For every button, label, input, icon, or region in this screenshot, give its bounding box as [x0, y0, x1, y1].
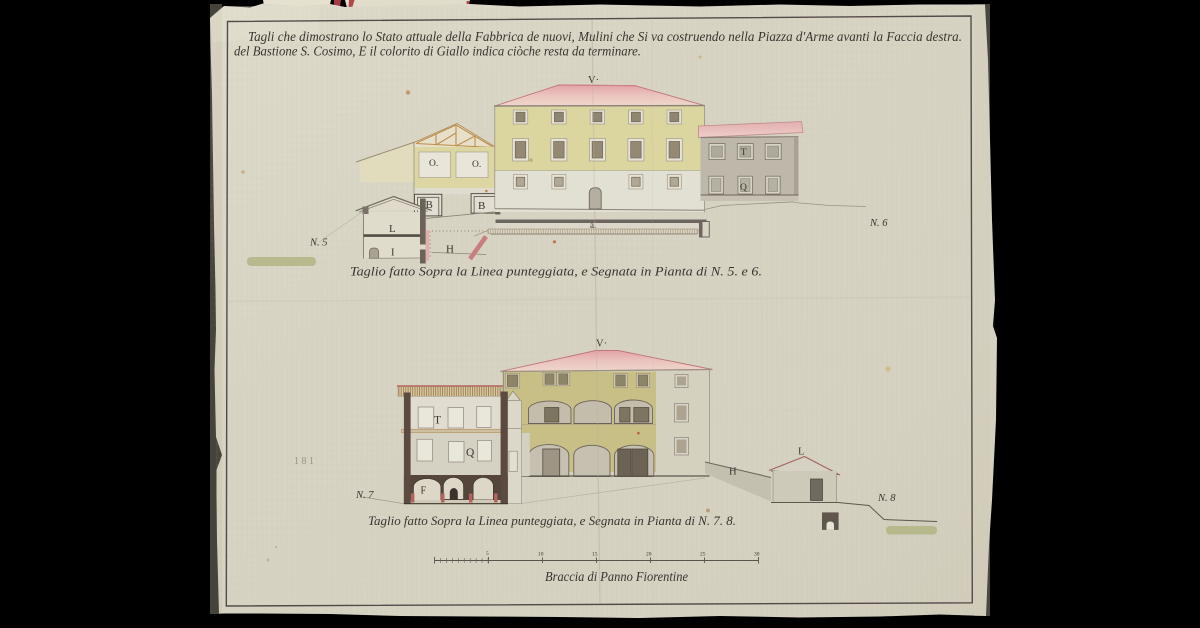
svg-text:Q: Q — [466, 447, 475, 459]
svg-text:del Bastione S. Cosimo, E il c: del Bastione S. Cosimo, E il colorito di… — [234, 44, 641, 59]
svg-text:N. 8: N. 8 — [877, 493, 896, 504]
svg-text:10: 10 — [538, 552, 544, 558]
svg-text:L: L — [389, 223, 396, 235]
svg-text:30: 30 — [754, 552, 760, 558]
svg-text:Taglio fatto Sopra la Linea pu: Taglio fatto Sopra la Linea punteggiata,… — [350, 264, 762, 279]
svg-text:T: T — [434, 415, 441, 427]
svg-text:B: B — [478, 200, 485, 212]
svg-text:H: H — [446, 244, 454, 256]
svg-text:H: H — [729, 467, 737, 478]
svg-text:Q: Q — [740, 183, 747, 193]
svg-text:Braccia di Panno Fiorentine: Braccia di Panno Fiorentine — [545, 569, 688, 584]
svg-text:N. 7: N. 7 — [355, 490, 374, 501]
svg-text:15: 15 — [592, 552, 598, 558]
svg-text:20: 20 — [646, 552, 652, 558]
svg-text:O.: O. — [472, 160, 481, 170]
svg-text:Taglio fatto Sopra la Linea pu: Taglio fatto Sopra la Linea punteggiata,… — [368, 513, 736, 528]
svg-text:O.: O. — [429, 159, 438, 169]
svg-text:T: T — [741, 148, 747, 158]
svg-text:5: 5 — [486, 551, 489, 557]
svg-text:25: 25 — [700, 552, 706, 558]
svg-text:N. 6: N. 6 — [869, 218, 888, 229]
svg-text:F: F — [421, 486, 427, 497]
svg-text:V·: V· — [596, 339, 607, 350]
svg-text:Tagli che dimostrano lo Stato: Tagli che dimostrano lo Stato attuale de… — [248, 29, 962, 44]
svg-text:V·: V· — [588, 75, 599, 86]
svg-text:1 8 1: 1 8 1 — [294, 456, 314, 467]
svg-text:I: I — [391, 248, 395, 259]
svg-text:L: L — [798, 447, 804, 458]
svg-text:N. 5: N. 5 — [309, 238, 328, 249]
